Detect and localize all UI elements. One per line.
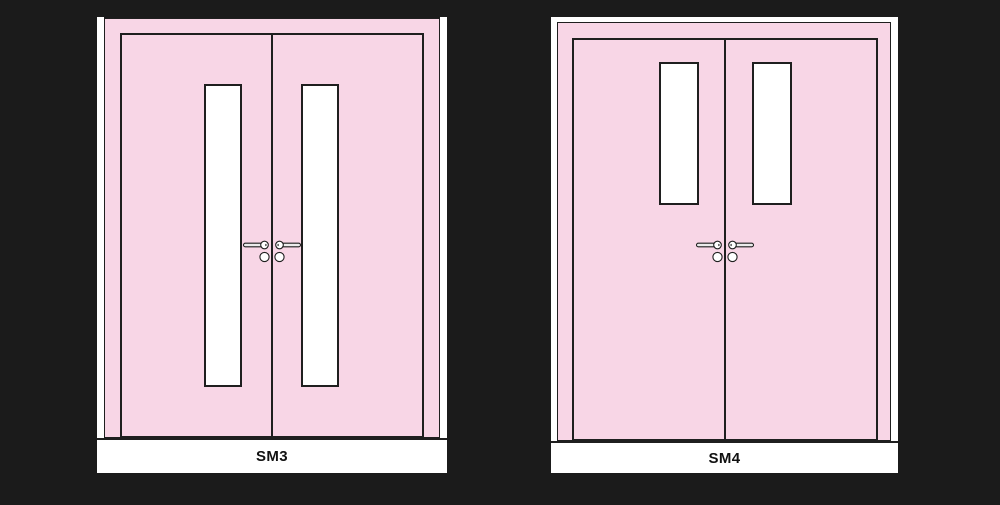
- door-label: SM3: [256, 448, 288, 465]
- door-label: SM4: [708, 450, 740, 467]
- meeting-stile: [271, 35, 273, 436]
- door-figure-sm3: SM3: [97, 17, 447, 473]
- lever-handles-icon: [693, 237, 757, 267]
- door-figure-sm4: SM4: [551, 17, 898, 473]
- label-band: SM4: [551, 441, 898, 473]
- frame-trim-left: [97, 17, 104, 438]
- door-leaves: [120, 33, 424, 438]
- vision-panel-left: [204, 84, 242, 387]
- canvas: SM3 SM4: [0, 0, 1000, 505]
- frame-trim-right: [440, 17, 447, 438]
- vision-panel-left: [659, 62, 699, 205]
- vision-panel-right: [752, 62, 792, 205]
- vision-panel-right: [301, 84, 339, 387]
- lever-handles-icon: [240, 237, 304, 267]
- label-band: SM3: [97, 438, 447, 473]
